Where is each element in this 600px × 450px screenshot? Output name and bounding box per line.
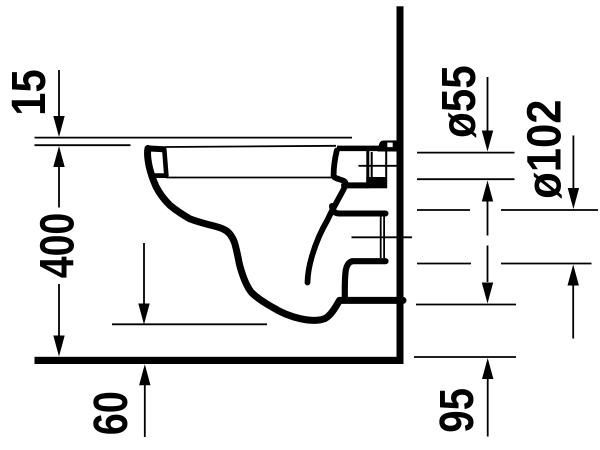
svg-text:400: 400 [31,213,85,279]
svg-text:95: 95 [430,388,483,433]
svg-text:60: 60 [84,391,138,435]
svg-text:ø55: ø55 [431,65,485,138]
svg-text:ø102: ø102 [517,99,572,198]
svg-text:15: 15 [1,69,56,115]
